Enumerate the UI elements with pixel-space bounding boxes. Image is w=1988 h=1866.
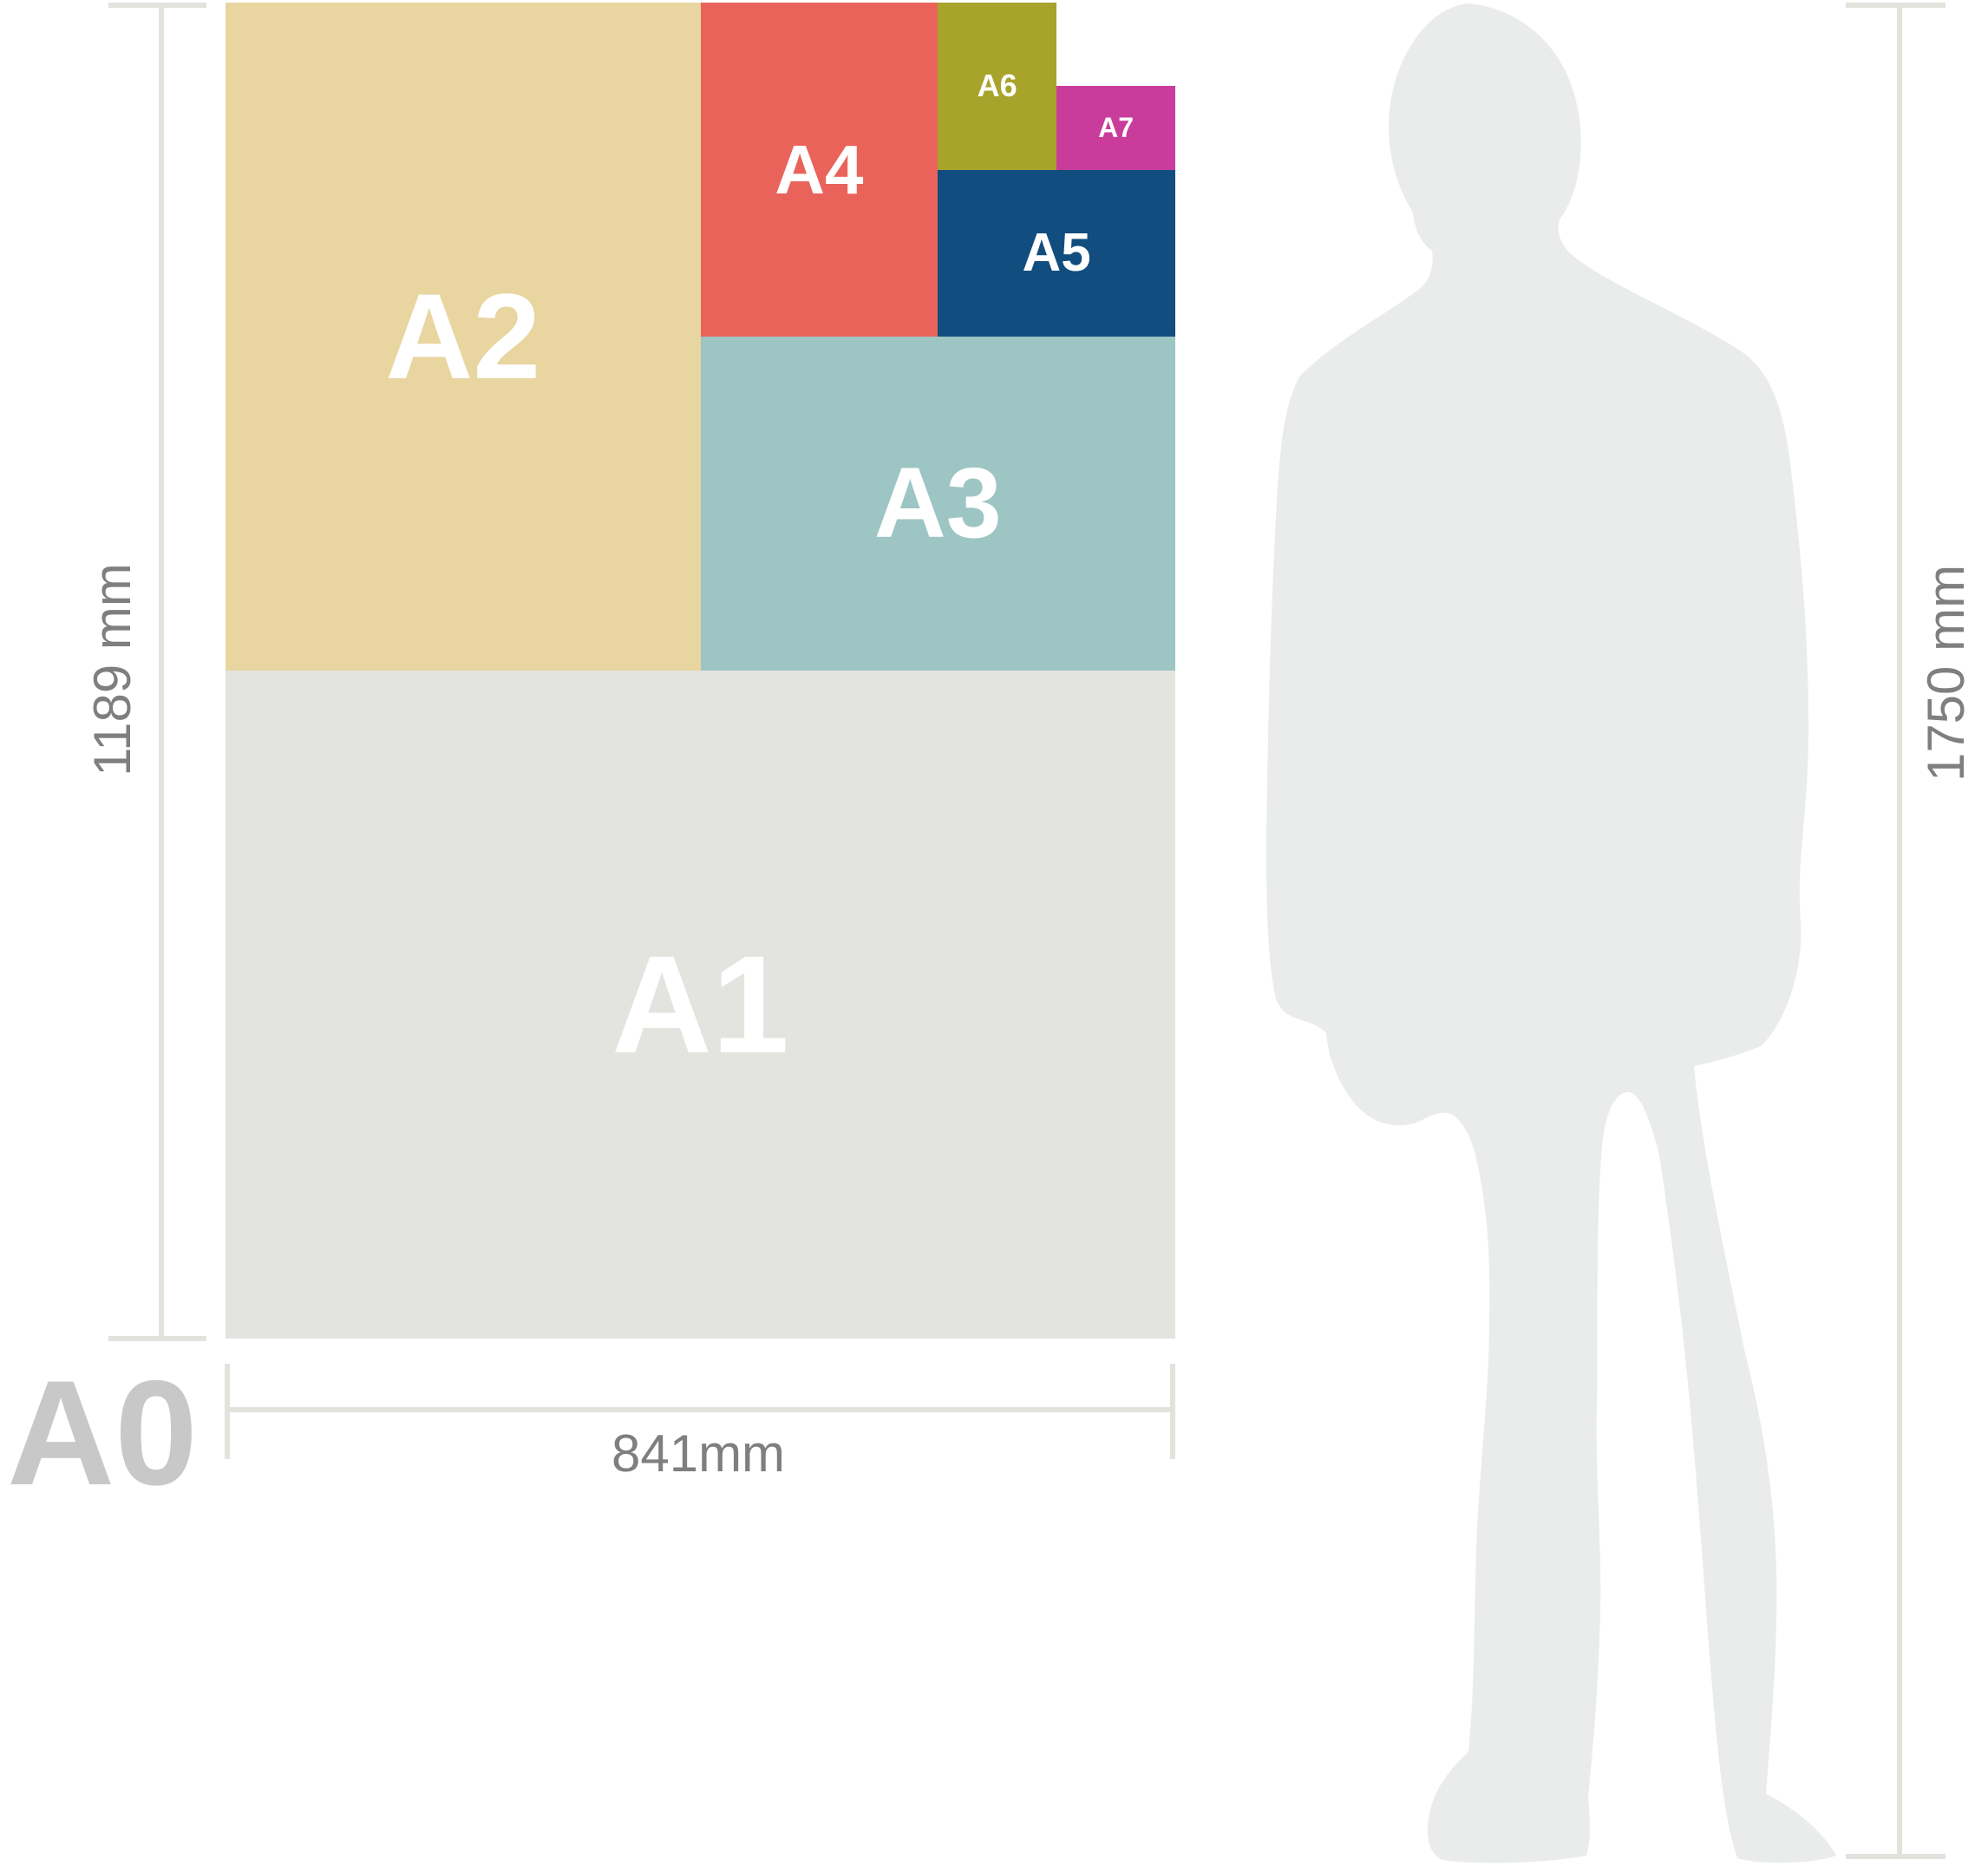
person-height-dimension-tick-top	[1846, 3, 1945, 8]
paper-size-diagram: 1189 mm A2 A4 A6 A7 A5 A3 A1 841mm A0	[0, 0, 1988, 1866]
human-silhouette	[0, 0, 1988, 1866]
human-silhouette-shape	[1266, 3, 1836, 1863]
person-height-label: 1750 mm	[1920, 565, 1972, 782]
person-height-dimension-line	[1897, 4, 1902, 1856]
person-height-dimension-tick-bottom	[1846, 1854, 1945, 1859]
